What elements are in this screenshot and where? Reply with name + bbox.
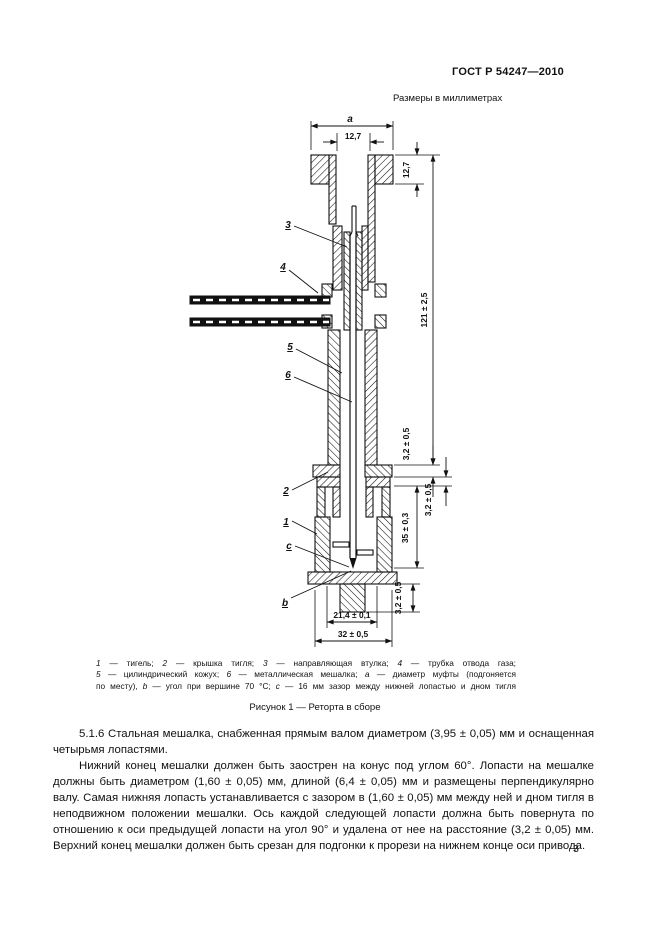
dim-crucible-height: 35 ± 0,3 (400, 513, 410, 544)
stirrer-blade-right (357, 550, 373, 555)
callout-c: c (286, 541, 292, 552)
retort-assembly-drawing: a 12,7 12,7 121 ± 2,5 3,2 ± 0,5 3,2 ± 0,… (185, 110, 461, 658)
paragraph-516: 5.1.6 Стальная мешалка, снабженная прямы… (53, 726, 594, 758)
units-note: Размеры в миллиметрах (393, 93, 502, 104)
crucible-lid (317, 477, 390, 517)
dim-gap-mid: 3,2 ± 0,5 (423, 483, 433, 516)
dim-crucible-width: 32 ± 0,5 (338, 629, 369, 639)
caption-line: по месту), b — угол при вершине 70 °С; c… (96, 681, 516, 692)
dim-assembly-height: 121 ± 2,5 (419, 292, 429, 327)
caption-line: 5 — цилиндрический кожух; 6 — металличес… (96, 669, 516, 680)
callout-3: 3 (285, 220, 291, 231)
paragraph-516-details: Нижний конец мешалки должен быть заостре… (53, 758, 594, 854)
doc-number: ГОСТ Р 54247—2010 (452, 66, 564, 78)
body-text: 5.1.6 Стальная мешалка, снабженная прямы… (53, 726, 594, 854)
callout-2: 2 (282, 486, 289, 497)
page-number: 3 (573, 843, 579, 855)
callout-labels: 3 4 5 6 2 1 c b (279, 220, 293, 609)
caption-line: 1 — тигель; 2 — крышка тигля; 3 — направ… (96, 658, 516, 669)
callout-5: 5 (287, 342, 293, 353)
cylindrical-casing (313, 330, 392, 477)
dim-flange-height: 12,7 (401, 162, 411, 179)
dim-plug-width: 21,4 ± 0,1 (333, 610, 371, 620)
dim-gap-top: 3,2 ± 0,5 (401, 427, 411, 460)
gas-tube (190, 296, 330, 326)
dim-a: a (347, 114, 353, 125)
figure-title: Рисунок 1 — Реторта в сборе (95, 702, 535, 713)
figure-caption: 1 — тигель; 2 — крышка тигля; 3 — направ… (96, 658, 516, 692)
stirrer-blade-left (333, 542, 349, 547)
callout-6: 6 (285, 370, 291, 381)
dim-gap-bottom: 3,2 ± 0,5 (393, 581, 403, 614)
callout-4: 4 (279, 262, 286, 273)
figure-drawing: a 12,7 12,7 121 ± 2,5 3,2 ± 0,5 3,2 ± 0,… (185, 110, 461, 663)
document-page: ГОСТ Р 54247—2010 Размеры в миллиметрах (0, 0, 661, 936)
callout-1: 1 (283, 517, 289, 528)
tube-bosses (322, 284, 386, 328)
callout-b: b (282, 598, 288, 609)
dim-bore-width: 12,7 (345, 131, 362, 141)
